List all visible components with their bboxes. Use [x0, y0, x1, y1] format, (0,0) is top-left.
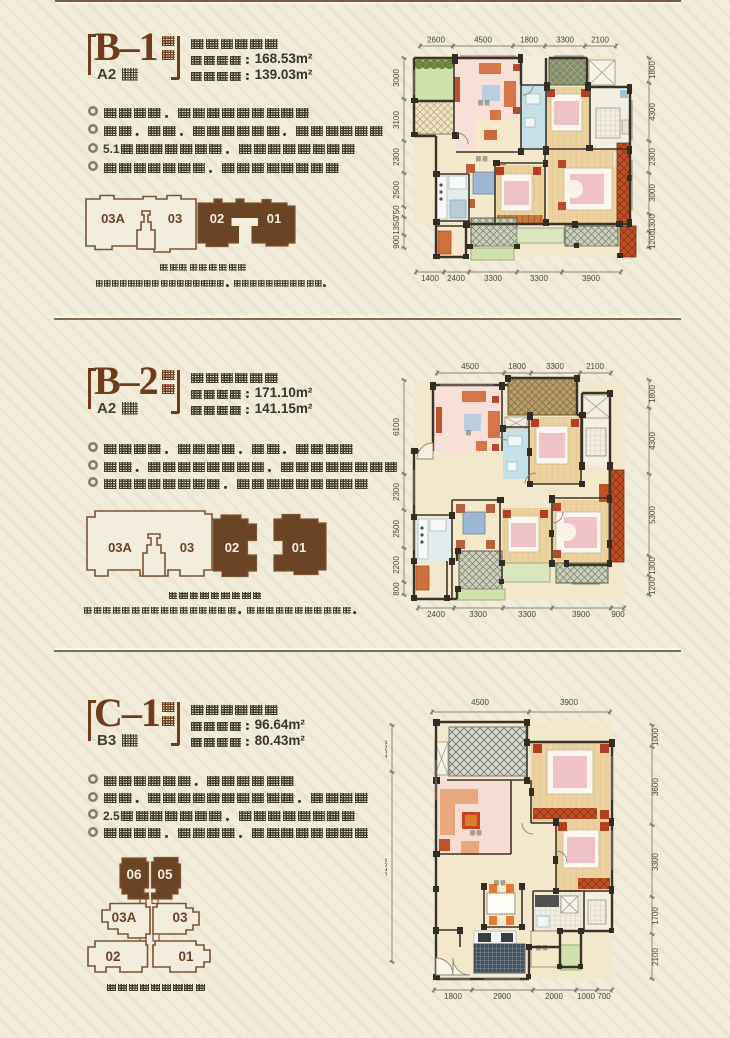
- svg-text:2300: 2300: [648, 148, 657, 166]
- svg-text:900: 900: [611, 610, 625, 619]
- svg-text:1800: 1800: [648, 385, 657, 403]
- svg-text:03: 03: [172, 910, 188, 925]
- svg-text:3900: 3900: [560, 698, 578, 707]
- svg-text:1400: 1400: [421, 274, 439, 283]
- svg-text:2300: 2300: [392, 483, 401, 501]
- svg-text:2400: 2400: [447, 274, 465, 283]
- svg-text:2000: 2000: [545, 992, 563, 1001]
- svg-text:1300: 1300: [648, 214, 657, 232]
- svg-text:2900: 2900: [493, 992, 511, 1001]
- svg-text:4500: 4500: [474, 36, 492, 45]
- svg-text:2400: 2400: [427, 610, 445, 619]
- svg-text:03A: 03A: [108, 540, 132, 555]
- svg-text:3300: 3300: [469, 610, 487, 619]
- svg-text:02: 02: [105, 949, 120, 964]
- svg-text:1800: 1800: [444, 992, 462, 1001]
- svg-text:5300: 5300: [648, 506, 657, 524]
- svg-text:2500: 2500: [392, 520, 401, 538]
- svg-text:06: 06: [126, 867, 142, 882]
- svg-text:03A: 03A: [112, 910, 137, 925]
- svg-text:4300: 4300: [648, 103, 657, 121]
- svg-text:2500: 2500: [385, 740, 389, 758]
- svg-text:1800: 1800: [648, 61, 657, 79]
- svg-text:3000: 3000: [392, 69, 401, 87]
- svg-text:03A: 03A: [101, 211, 125, 226]
- svg-text:2100: 2100: [586, 362, 604, 371]
- svg-text:3300: 3300: [518, 610, 536, 619]
- svg-text:700: 700: [597, 992, 611, 1001]
- svg-text:3100: 3100: [392, 111, 401, 129]
- svg-text:3900: 3900: [582, 274, 600, 283]
- svg-text:2500: 2500: [392, 181, 401, 199]
- svg-text:02: 02: [210, 211, 224, 226]
- svg-text:01: 01: [178, 949, 194, 964]
- svg-text:3000: 3000: [648, 184, 657, 202]
- svg-text:1200: 1200: [648, 231, 657, 249]
- svg-text:4500: 4500: [461, 362, 479, 371]
- svg-text:02: 02: [225, 540, 239, 555]
- svg-text:2200: 2200: [392, 556, 401, 574]
- svg-text:2600: 2600: [427, 36, 445, 45]
- svg-text:2100: 2100: [651, 948, 660, 966]
- svg-text:01: 01: [267, 211, 281, 226]
- svg-text:3300: 3300: [651, 853, 660, 871]
- svg-text:4300: 4300: [648, 432, 657, 450]
- svg-text:900: 900: [392, 235, 401, 249]
- svg-text:4500: 4500: [471, 698, 489, 707]
- svg-text:3900: 3900: [572, 610, 590, 619]
- svg-text:1300: 1300: [648, 557, 657, 575]
- svg-text:03: 03: [180, 540, 194, 555]
- svg-text:1350: 1350: [392, 217, 401, 235]
- svg-text:750: 750: [392, 205, 401, 219]
- svg-text:2300: 2300: [392, 148, 401, 166]
- svg-text:1800: 1800: [520, 36, 538, 45]
- svg-text:03: 03: [168, 211, 182, 226]
- svg-text:3300: 3300: [530, 274, 548, 283]
- svg-text:01: 01: [292, 540, 306, 555]
- svg-text:1200: 1200: [648, 577, 657, 595]
- svg-text:9200: 9200: [385, 858, 389, 876]
- svg-text:1000: 1000: [651, 728, 660, 746]
- svg-text:1000: 1000: [577, 992, 595, 1001]
- svg-text:3600: 3600: [651, 778, 660, 796]
- svg-text:1700: 1700: [651, 907, 660, 925]
- svg-text:800: 800: [392, 582, 401, 596]
- svg-text:2100: 2100: [591, 36, 609, 45]
- svg-text:05: 05: [157, 867, 173, 882]
- svg-text:6100: 6100: [392, 418, 401, 436]
- svg-text:3300: 3300: [546, 362, 564, 371]
- svg-text:3300: 3300: [556, 36, 574, 45]
- svg-text:1800: 1800: [508, 362, 526, 371]
- svg-text:3300: 3300: [484, 274, 502, 283]
